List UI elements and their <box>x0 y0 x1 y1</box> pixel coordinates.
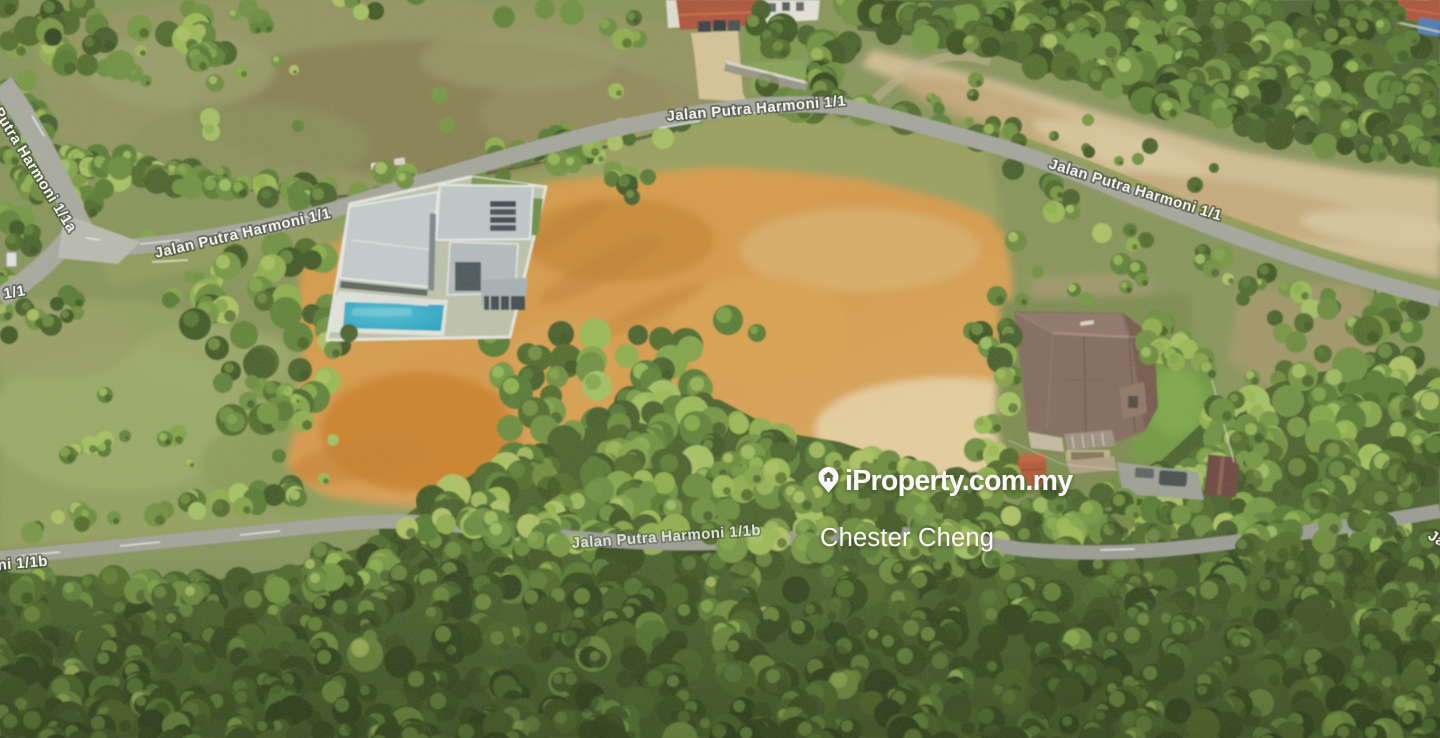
svg-text:iProperty.com.my: iProperty.com.my <box>845 465 1073 497</box>
svg-text:Chester Cheng: Chester Cheng <box>820 524 994 552</box>
